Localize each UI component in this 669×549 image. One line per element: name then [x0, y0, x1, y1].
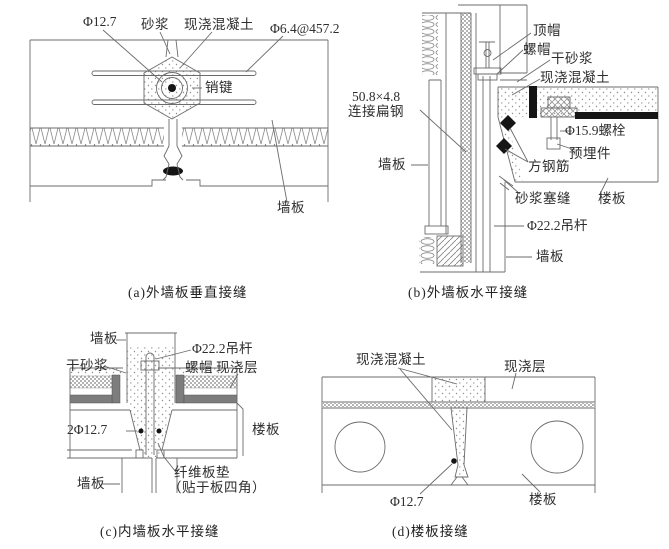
label-c-wall-panel-top: 墙板	[90, 332, 118, 346]
label-d-bar-dia: Φ12.7	[390, 495, 424, 509]
caption-a: (a)外墙板垂直接缝	[128, 286, 247, 300]
caption-b: (b)外墙板水平接缝	[408, 286, 528, 300]
label-d-floor-slab: 楼板	[529, 493, 557, 507]
label-c-dry-mortar: 干砂浆	[66, 359, 108, 373]
caption-c: (c)内墙板水平接缝	[100, 525, 219, 539]
diagram-a-drawing	[30, 30, 328, 202]
label-b-flat-steel-size: 50.8×4.8	[352, 90, 400, 104]
label-a-tie-bar: Φ6.4@457.2	[270, 22, 340, 36]
label-c-hanger-rod: Φ22.2吊杆	[192, 342, 253, 356]
label-c-bars: 2Φ12.7	[67, 423, 107, 437]
label-b-embedded-part: 预埋件	[569, 147, 611, 161]
label-c-wall-panel-bottom: 墙板	[77, 477, 105, 491]
label-d-cast-layer: 现浇层	[504, 360, 546, 374]
label-b-mortar-caulking: 砂浆塞缝	[515, 192, 571, 206]
label-c-floor-slab: 楼板	[252, 423, 280, 437]
label-b-hanger-rod: Φ22.2吊杆	[527, 219, 588, 233]
label-b-wall-panel-left: 墙板	[378, 158, 406, 172]
label-b-flat-steel: 连接扁钢	[348, 105, 404, 119]
label-d-cast-concrete: 现浇混凝土	[356, 353, 426, 367]
label-a-shear-key: 销键	[205, 81, 233, 95]
label-c-cast-layer: 现浇层	[216, 361, 258, 375]
label-b-top-cap: 顶帽	[533, 24, 561, 38]
label-a-wall-panel: 墙板	[277, 201, 305, 215]
label-a-bar-dia: Φ12.7	[83, 15, 117, 29]
label-a-cast-concrete: 现浇混凝土	[184, 18, 254, 32]
label-b-square-rebar: 方钢筋	[528, 160, 570, 174]
label-b-cast-concrete: 现浇混凝土	[540, 71, 610, 85]
label-b-bolt: Φ15.9螺栓	[565, 124, 626, 138]
label-b-floor-slab: 楼板	[598, 192, 626, 206]
figure-canvas: Φ12.7 砂浆 现浇混凝土 Φ6.4@457.2 销键 墙板 (a)外墙板垂直…	[0, 0, 669, 549]
label-c-fiber-pad-note: （贴于板四角）	[168, 481, 266, 495]
label-c-fiber-pad: 纤维板垫	[174, 466, 230, 480]
label-c-nut: 螺帽	[185, 361, 213, 375]
caption-d: (d)楼板接缝	[392, 525, 469, 539]
label-b-dry-mortar: 干砂浆	[551, 52, 593, 66]
label-b-nut: 螺帽	[523, 43, 551, 57]
label-a-mortar: 砂浆	[141, 18, 169, 32]
diagram-d-drawing	[322, 368, 595, 494]
label-b-wall-panel-bottom: 墙板	[536, 250, 564, 264]
